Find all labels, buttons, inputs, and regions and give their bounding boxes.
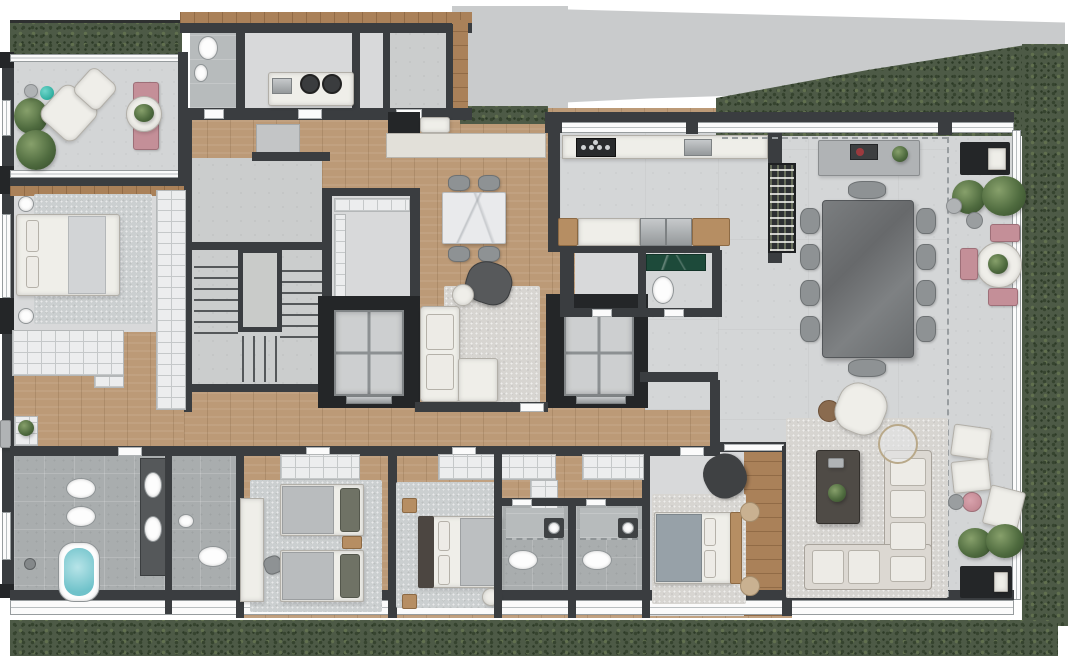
twin-bed-2-blanket <box>282 552 334 600</box>
hedge-right <box>1022 44 1068 626</box>
suite-pillow-1 <box>704 518 716 546</box>
pillar-top-1 <box>686 116 698 134</box>
tall-wardrobe-left <box>156 190 186 410</box>
pillar-top-2 <box>938 116 952 135</box>
terrace-pot <box>24 84 38 98</box>
great-room-floor-west <box>645 133 720 410</box>
wall-double-bath1 <box>494 452 502 618</box>
pillar-kitchen-west <box>545 112 562 133</box>
hall-shelf-plant <box>18 420 34 436</box>
wardrobe-left-bedroom-step <box>94 376 124 388</box>
twin-nightstand <box>342 536 362 549</box>
storage-room-floor <box>389 27 447 115</box>
suite-headboard-bench <box>730 512 742 584</box>
door-suite-bedroom <box>680 447 704 456</box>
island-steel-module-2 <box>666 218 692 246</box>
grand-dining-chair <box>800 244 820 270</box>
wc2-sink <box>178 514 194 528</box>
glass-side-table <box>878 424 918 464</box>
service-toilet <box>198 36 218 60</box>
stair-void <box>238 248 282 332</box>
grand-dining-chair <box>916 316 936 342</box>
dining-chair <box>478 246 500 262</box>
sofa-cushion <box>812 550 844 584</box>
entry-mat <box>256 124 300 154</box>
counter-dining-side <box>386 133 546 158</box>
master-sink-1 <box>144 472 162 498</box>
laundry-sink <box>272 78 292 94</box>
powder-toilet <box>652 276 674 304</box>
window-left-3 <box>2 512 11 560</box>
grand-dining-chair <box>916 244 936 270</box>
lounge-chair-white-1 <box>950 424 992 461</box>
bath1-sink <box>548 522 560 534</box>
stairs-flight-right <box>280 268 322 338</box>
stairs-lower-steps <box>242 336 282 382</box>
wall-pantry-powder <box>638 250 646 312</box>
sofa-cushion <box>890 490 926 518</box>
dining-chair <box>448 175 470 191</box>
window-left-1 <box>2 100 11 136</box>
sofa-cushion <box>890 522 926 550</box>
stairs-flight-left <box>194 262 238 334</box>
fire-table-panel <box>994 572 1008 592</box>
terrace-right-pot <box>946 198 962 214</box>
wall-masterbath-wc <box>165 456 172 614</box>
cooktop-burners <box>581 145 586 150</box>
window-terrace-bottom <box>10 170 182 178</box>
dining-chair <box>478 175 500 191</box>
terrace-right-plant-4 <box>986 524 1024 558</box>
wall-stairs-bottom <box>188 384 332 392</box>
door-powder <box>664 309 684 317</box>
family-dining-table <box>442 192 506 244</box>
hedge-kitchen-planter <box>460 106 548 124</box>
pink-chair-left <box>960 248 978 280</box>
lounge-chair-white-2 <box>950 458 991 494</box>
suite-pillow-2 <box>704 550 716 578</box>
terrace-plant-2 <box>16 130 56 170</box>
door-service-bath <box>204 109 224 119</box>
wc2-toilet <box>198 546 228 567</box>
door-pantry <box>592 309 612 317</box>
twin-bed-1-blanket <box>282 486 334 534</box>
island-wood-end-right <box>692 218 730 246</box>
twin-bed-2-pillow <box>340 554 360 598</box>
master-sink-2 <box>144 516 162 542</box>
grill-cabinet-panel <box>988 148 1006 170</box>
window-terrace-top <box>10 54 182 62</box>
washer-1 <box>300 74 320 94</box>
fridge-cabinet <box>388 112 420 133</box>
island-steel-module-1 <box>640 218 666 246</box>
grand-dining-chair <box>800 208 820 234</box>
pink-pouf <box>962 492 982 512</box>
floor-plan <box>0 0 1070 661</box>
double-nightstand-2 <box>402 594 417 609</box>
suite-pouf-2 <box>740 576 760 596</box>
sideboard-plant <box>892 146 908 162</box>
window-left-2 <box>2 214 11 298</box>
service-sink <box>194 64 208 82</box>
master-bidet <box>66 506 96 527</box>
deck-band-service-top <box>180 12 472 23</box>
grand-dining-chair <box>916 208 936 234</box>
island-wood-end-left <box>558 218 578 246</box>
foyer-panel-west <box>334 214 346 298</box>
washer-2 <box>322 74 342 94</box>
hedge-bottom <box>10 620 1058 656</box>
wall-powder-east <box>712 250 722 312</box>
door-corridor-a <box>520 403 544 412</box>
sofa-corner-cushion <box>890 556 926 582</box>
nightstand-left-1 <box>18 196 34 212</box>
door-bath-2 <box>586 499 606 506</box>
wall-pantry-west <box>560 250 574 312</box>
double-pillow-2 <box>438 555 450 585</box>
grand-dining-chair <box>800 316 820 342</box>
pink-chair-bottom <box>988 288 1018 306</box>
upper-cabinet <box>420 117 450 133</box>
grand-dining-chair <box>916 280 936 306</box>
kitchen-sink <box>684 139 712 156</box>
wall-service-right <box>446 24 453 116</box>
twin-closet <box>280 454 360 480</box>
wall-left-pier-3 <box>0 298 14 334</box>
dining-chair <box>448 246 470 262</box>
lounge-sofa-chaise <box>458 358 498 402</box>
service-hall-floor <box>360 32 384 108</box>
wall-bath-laundry <box>236 32 245 108</box>
bath2-sink <box>622 522 634 534</box>
espresso-station <box>850 144 878 160</box>
door-laundry <box>298 109 322 119</box>
suite-north-door <box>724 444 784 451</box>
powder-green-counter <box>646 254 706 271</box>
lounge-sofa-cushion <box>426 354 454 390</box>
bath2-toilet <box>582 550 612 570</box>
grand-dining-chair <box>848 181 886 199</box>
grand-dining-chair <box>800 280 820 306</box>
terrace-right-table-plant <box>988 254 1008 274</box>
wall-powder-south <box>560 308 722 317</box>
terrace-gray-pouf <box>966 212 983 229</box>
door-master-suite <box>118 447 142 456</box>
grand-dining-chair <box>848 359 886 377</box>
twin-bed-1-pillow <box>340 488 360 532</box>
condenser-box <box>0 420 11 448</box>
wall-divider-stub <box>768 253 782 263</box>
pink-chair-top <box>990 224 1020 242</box>
double-pillow-1 <box>438 521 450 551</box>
elevator-1-door <box>346 396 392 404</box>
lounge-sofa-cushion <box>426 314 454 350</box>
suite-pouf-1 <box>740 502 760 522</box>
door-bath-1 <box>512 499 532 506</box>
lounge-tray-table <box>452 284 474 306</box>
terrace-right-plant-2 <box>982 176 1026 216</box>
double-headboard <box>418 516 434 588</box>
terrace-table-plant <box>134 104 154 122</box>
wall-corridor-north-b <box>640 372 718 382</box>
small-gray-pouf <box>948 494 964 510</box>
wall-hall-storage <box>383 27 390 115</box>
suite-bed-blanket <box>656 514 702 582</box>
double-nightstand-1 <box>402 498 417 513</box>
wall-hall-seg <box>252 152 330 161</box>
hedge-top-left <box>10 20 182 57</box>
espresso-red-detail <box>856 148 864 156</box>
bathtub-water <box>64 548 94 596</box>
coffee-table-plant <box>828 484 846 502</box>
suite-closet <box>582 454 644 480</box>
wall-foyer-north <box>322 188 420 196</box>
coffee-table-tray <box>828 458 844 468</box>
master-toilet <box>66 478 96 499</box>
elevator-2-car <box>564 310 634 396</box>
foyer-closet-top <box>334 198 410 212</box>
bed-left-pillow-1 <box>26 220 39 252</box>
wardrobe-left-bedroom <box>12 330 124 376</box>
twin-desk <box>240 498 264 602</box>
nightstand-left-2 <box>18 308 34 324</box>
wall-terrace-bedroom <box>10 178 184 186</box>
shower-head-master <box>24 558 36 570</box>
bath1-toilet <box>508 550 538 570</box>
wall-bath1-bath2 <box>568 506 576 618</box>
bed-left-blanket <box>68 216 106 294</box>
grand-dining-table <box>822 200 914 358</box>
elevator-2-door <box>576 396 626 404</box>
bed-left-pillow-2 <box>26 256 39 288</box>
deck-band-service-right <box>452 20 468 116</box>
kitchen-island <box>578 218 640 246</box>
sofa-cushion <box>848 550 880 584</box>
elevator-1-car <box>334 310 404 396</box>
stair-hall-floor <box>192 158 322 242</box>
wall-service-top <box>180 23 472 33</box>
wine-rack <box>768 163 796 253</box>
window-bottom-band <box>10 600 1014 615</box>
